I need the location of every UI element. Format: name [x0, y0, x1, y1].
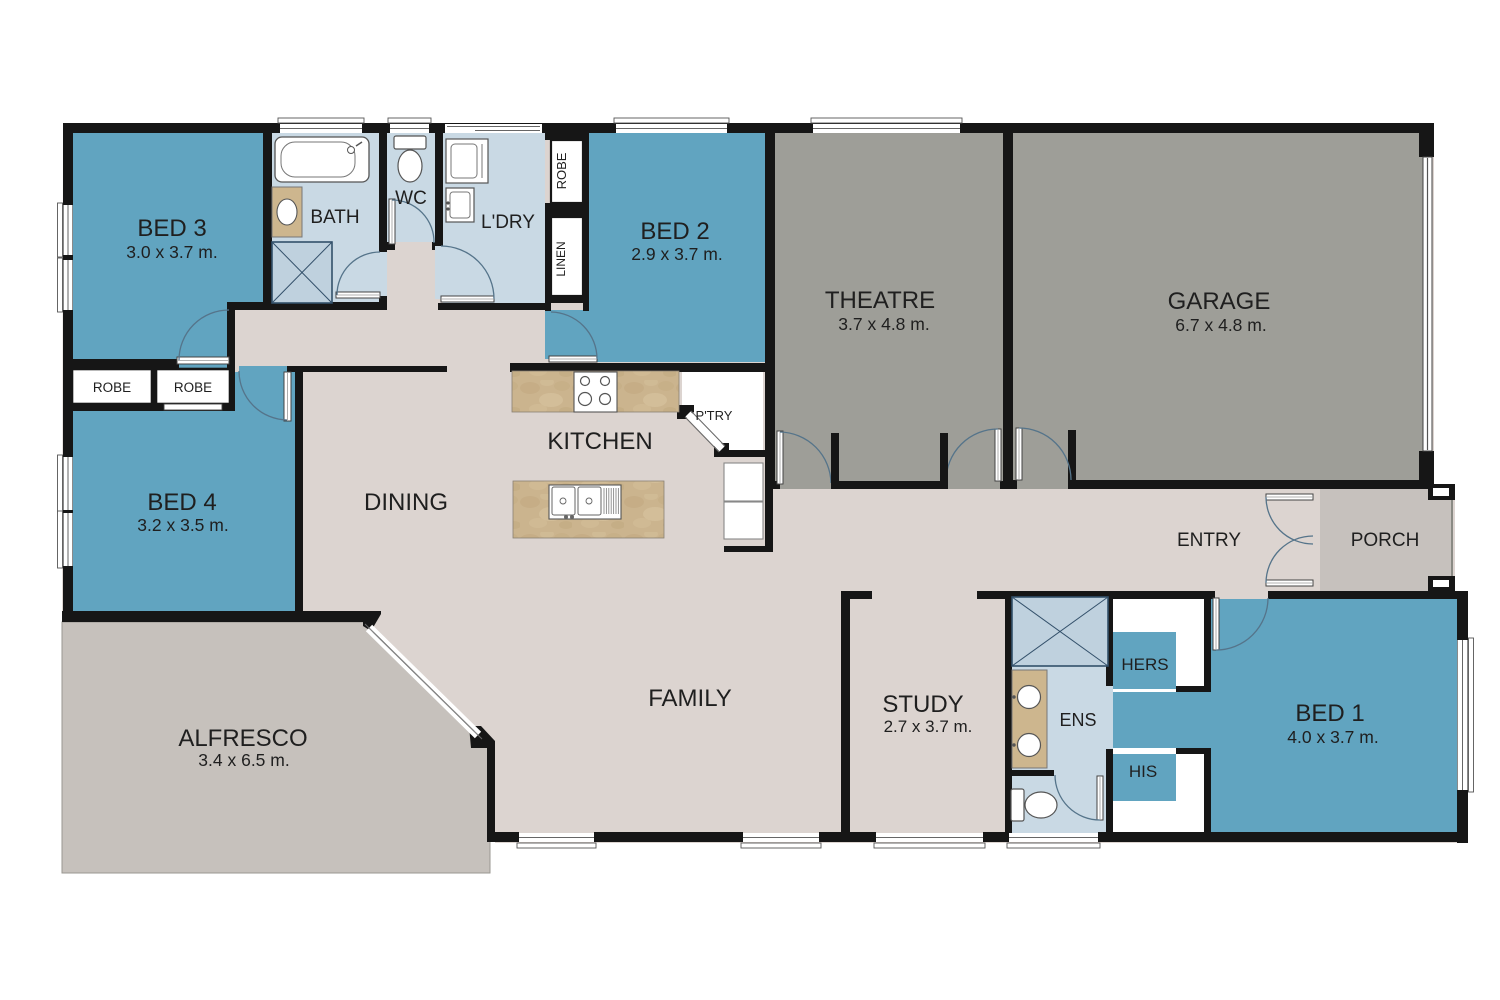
svg-text:BED 1: BED 1: [1295, 700, 1364, 727]
svg-text:BATH: BATH: [310, 207, 359, 228]
svg-text:KITCHEN: KITCHEN: [547, 428, 652, 455]
svg-text:HERS: HERS: [1121, 655, 1168, 674]
svg-text:FAMILY: FAMILY: [648, 685, 732, 712]
svg-text:DINING: DINING: [364, 489, 448, 516]
svg-text:P'TRY: P'TRY: [696, 408, 733, 423]
svg-text:BED 4: BED 4: [147, 489, 216, 516]
svg-text:ALFRESCO: ALFRESCO: [178, 725, 307, 752]
svg-text:LINEN: LINEN: [554, 241, 568, 276]
svg-text:4.0 x 3.7 m.: 4.0 x 3.7 m.: [1287, 727, 1378, 747]
svg-text:2.9 x 3.7 m.: 2.9 x 3.7 m.: [631, 244, 722, 264]
svg-text:THEATRE: THEATRE: [825, 287, 935, 314]
svg-text:HIS: HIS: [1129, 762, 1157, 781]
svg-text:L'DRY: L'DRY: [481, 212, 535, 233]
svg-text:PORCH: PORCH: [1351, 530, 1420, 551]
svg-text:6.7 x 4.8 m.: 6.7 x 4.8 m.: [1175, 315, 1266, 335]
svg-text:STUDY: STUDY: [882, 691, 963, 718]
svg-text:BED 2: BED 2: [640, 218, 709, 245]
svg-text:ROBE: ROBE: [93, 380, 131, 395]
svg-text:3.0 x 3.7 m.: 3.0 x 3.7 m.: [126, 242, 217, 262]
svg-text:3.7 x 4.8 m.: 3.7 x 4.8 m.: [838, 314, 929, 334]
svg-text:WC: WC: [395, 188, 427, 209]
svg-text:2.7 x 3.7 m.: 2.7 x 3.7 m.: [884, 717, 973, 736]
svg-text:3.2 x 3.5 m.: 3.2 x 3.5 m.: [137, 515, 228, 535]
svg-text:ENS: ENS: [1059, 710, 1096, 730]
svg-text:3.4 x 6.5 m.: 3.4 x 6.5 m.: [198, 750, 289, 770]
svg-text:ENTRY: ENTRY: [1177, 530, 1241, 551]
svg-text:GARAGE: GARAGE: [1168, 288, 1271, 315]
svg-text:ROBE: ROBE: [554, 152, 569, 189]
svg-text:ROBE: ROBE: [174, 380, 212, 395]
svg-text:BED 3: BED 3: [137, 215, 206, 242]
